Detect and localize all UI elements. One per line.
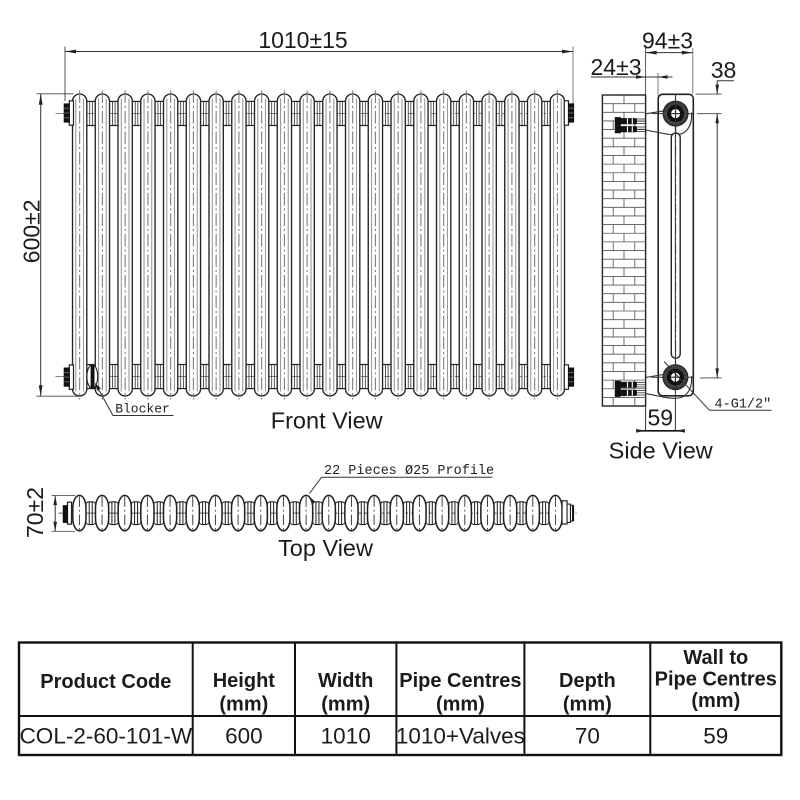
svg-text:Width: Width	[318, 670, 373, 692]
svg-text:1010: 1010	[321, 724, 371, 749]
svg-text:Depth: Depth	[559, 670, 616, 692]
svg-text:Height: Height	[213, 670, 276, 692]
svg-text:59: 59	[648, 404, 674, 430]
svg-text:Side View: Side View	[609, 438, 714, 464]
svg-text:(mm): (mm)	[436, 694, 485, 716]
svg-text:(mm): (mm)	[563, 694, 612, 716]
svg-text:70±2: 70±2	[22, 487, 48, 538]
svg-text:(mm): (mm)	[219, 694, 268, 716]
svg-text:Front View: Front View	[271, 408, 384, 434]
svg-text:Pipe Centres: Pipe Centres	[399, 670, 521, 692]
svg-text:70: 70	[575, 724, 600, 749]
svg-text:24±3: 24±3	[591, 54, 642, 80]
svg-text:Wall to: Wall to	[683, 647, 748, 669]
svg-text:94±3: 94±3	[642, 28, 693, 54]
svg-text:Top View: Top View	[278, 535, 374, 561]
svg-text:1010+Valves: 1010+Valves	[396, 724, 525, 749]
svg-text:1010±15: 1010±15	[258, 27, 347, 53]
svg-text:Pipe Centres: Pipe Centres	[655, 668, 777, 690]
svg-text:COL-2-60-101-W: COL-2-60-101-W	[20, 724, 193, 749]
svg-text:22 Pieces Ø25 Profile: 22 Pieces Ø25 Profile	[324, 464, 494, 479]
svg-text:Blocker: Blocker	[115, 402, 170, 417]
svg-text:600±2: 600±2	[19, 199, 45, 263]
svg-text:(mm): (mm)	[691, 690, 740, 712]
svg-text:38: 38	[711, 57, 737, 83]
svg-text:(mm): (mm)	[321, 694, 370, 716]
svg-text:59: 59	[703, 724, 728, 749]
svg-text:600: 600	[225, 724, 263, 749]
svg-text:Product Code: Product Code	[40, 671, 171, 693]
svg-text:4-G1/2″: 4-G1/2″	[715, 398, 772, 413]
